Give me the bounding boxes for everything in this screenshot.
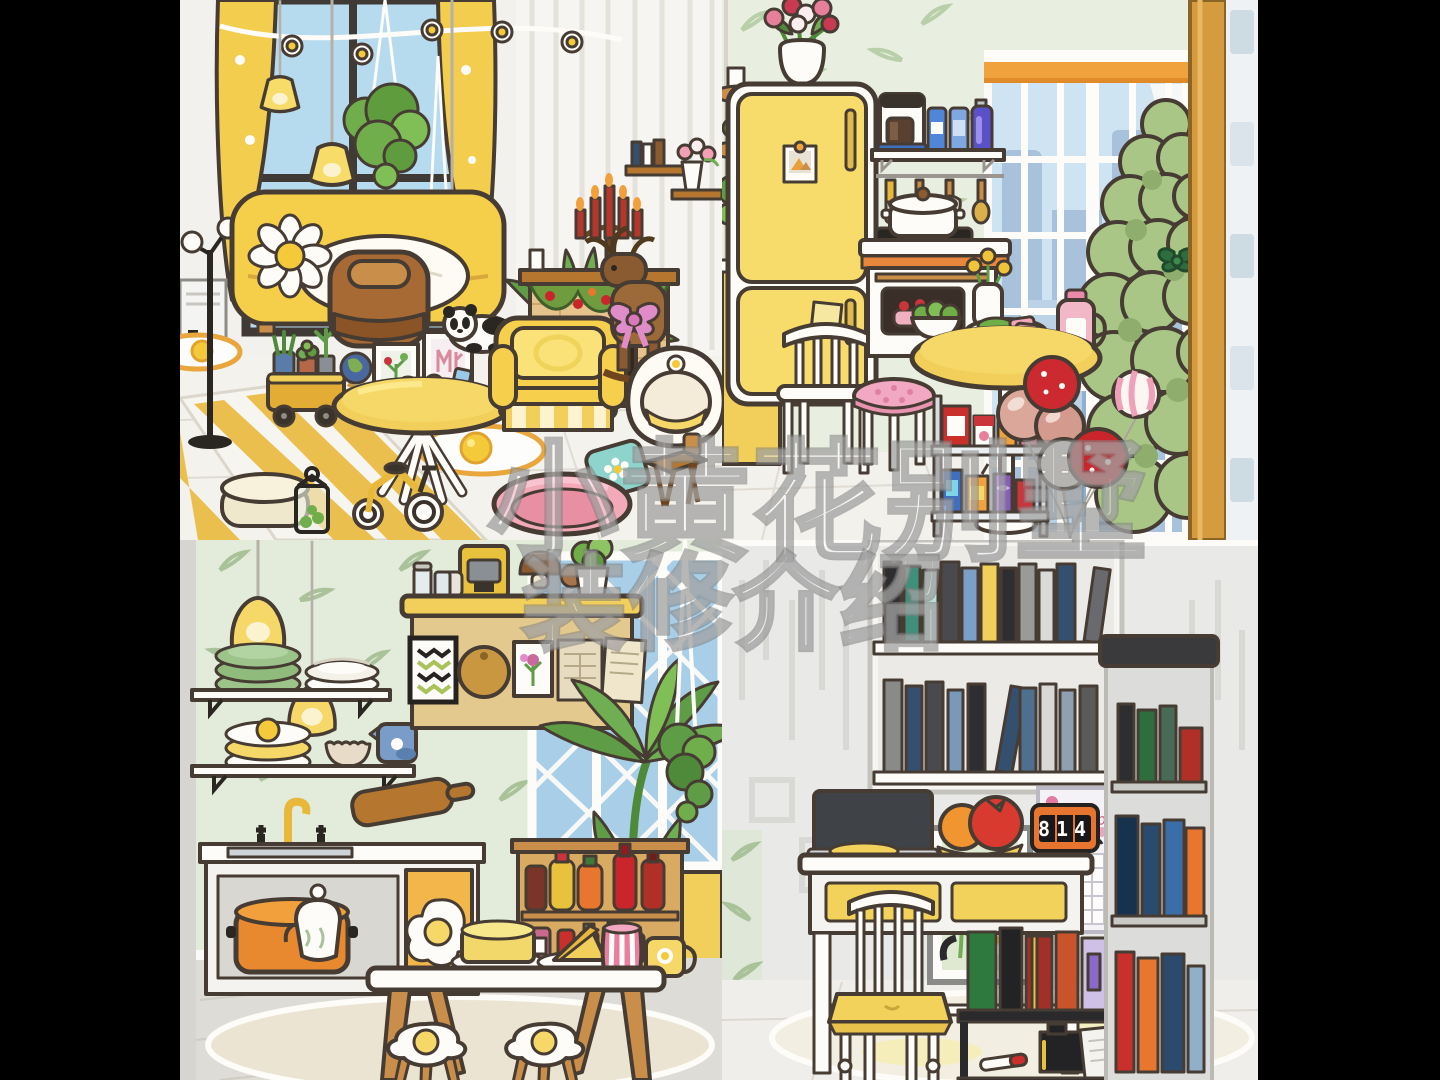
bookcase-row-2 — [1116, 816, 1204, 916]
flip-clock: 814 — [1032, 805, 1098, 851]
tile-strip — [1226, 0, 1258, 540]
polaroid-magnet — [784, 142, 816, 182]
coffee-maker — [878, 94, 926, 154]
daisy-pillow — [249, 215, 331, 297]
blue-jug — [370, 724, 416, 762]
lettuce-pot — [572, 540, 612, 596]
blue-bottles — [928, 100, 992, 154]
orange-shade — [984, 62, 1190, 78]
scalloped-bowl — [326, 742, 370, 766]
study-scene: September — [722, 540, 1258, 1080]
stripe-skirt — [504, 404, 612, 430]
yellow-cake — [452, 921, 544, 973]
pink-stool — [854, 379, 934, 470]
tomato — [970, 797, 1022, 849]
clock-digits: 814 — [1038, 817, 1092, 841]
yellow-cushion — [829, 994, 951, 1034]
video-frame: September — [0, 0, 1440, 1080]
living-room-scene — [180, 0, 722, 540]
dining-kitchen-scene — [180, 540, 722, 1080]
red-balloon-2 — [1069, 429, 1127, 487]
egg-pod-chair — [628, 348, 722, 446]
wall-bookshelf — [870, 540, 1122, 792]
flower-art — [514, 642, 552, 696]
fried-egg-stool — [506, 1024, 583, 1080]
kitchen-scene — [722, 0, 1258, 540]
brown-armchair — [330, 252, 428, 346]
red-balloon — [1025, 357, 1079, 411]
tall-bookcase — [1100, 636, 1218, 1080]
wooden-pillar — [1190, 0, 1226, 540]
chevron-art — [410, 638, 456, 702]
fried-egg-stool — [388, 1024, 465, 1080]
edge-strip — [180, 540, 196, 1080]
books-row-1 — [884, 562, 1110, 643]
drawer-right — [952, 883, 1066, 921]
room-collage: September — [180, 0, 1258, 1080]
